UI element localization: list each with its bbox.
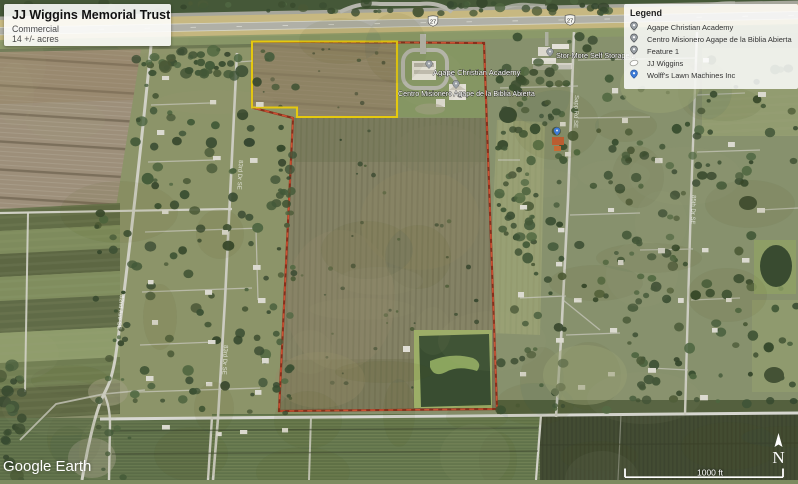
svg-text:N: N — [772, 448, 784, 467]
svg-text:Agape Christian Academy: Agape Christian Academy — [433, 68, 521, 77]
svg-text:Sapp Rd SE: Sapp Rd SE — [572, 95, 579, 128]
svg-text:85th Dr SE: 85th Dr SE — [689, 195, 696, 225]
svg-text:1000 ft: 1000 ft — [697, 468, 724, 478]
svg-text:Centro Misionero Agape de la B: Centro Misionero Agape de la Biblia Abie… — [398, 90, 535, 98]
svg-text:27: 27 — [567, 18, 573, 24]
svg-text:27: 27 — [430, 19, 436, 25]
